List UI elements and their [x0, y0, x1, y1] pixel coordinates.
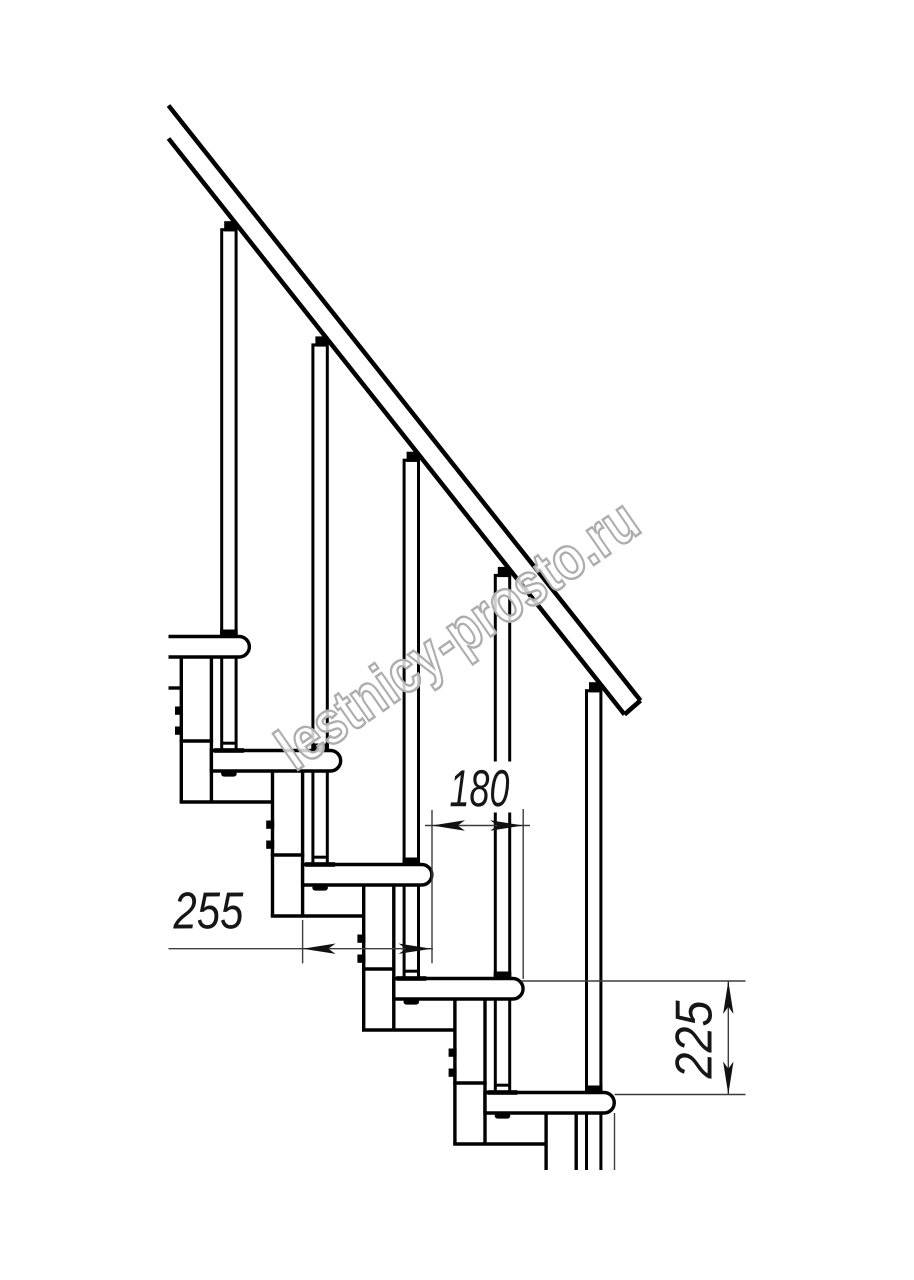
- svg-text:255: 255: [173, 882, 245, 940]
- svg-text:225: 225: [666, 1000, 724, 1080]
- svg-text:180: 180: [449, 760, 509, 818]
